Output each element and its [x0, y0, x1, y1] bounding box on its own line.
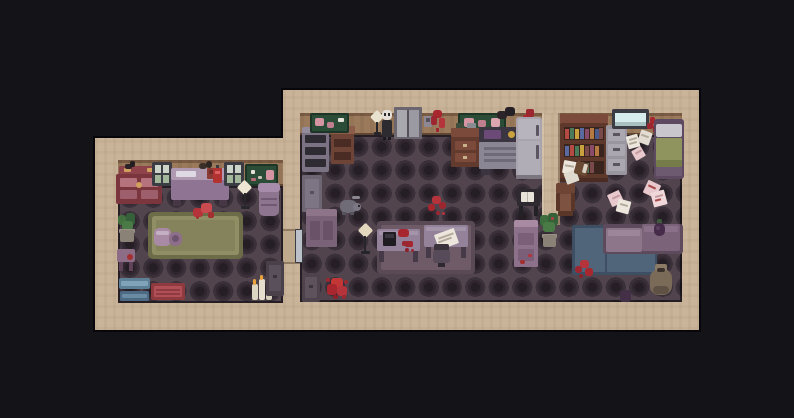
floor-blood-1-part: [436, 211, 440, 215]
red-doormat: [151, 283, 185, 300]
metal-shelf-part: [305, 135, 326, 143]
floor-blood-drips-part: [402, 241, 407, 246]
clay-pot-part: [653, 286, 669, 294]
game-scene: [0, 0, 794, 418]
file-cabinet: [606, 125, 627, 175]
elevator-door-part: [409, 110, 419, 137]
floor-blood-2-part: [344, 280, 348, 284]
paper-scrap-2: [639, 131, 651, 144]
mauve-dresser: [306, 209, 337, 247]
wall-sconce-lamp-part: [374, 132, 381, 135]
bookshelf-part: [590, 145, 594, 156]
floor-blood-1: [428, 196, 447, 218]
kitchen-stool-part: [119, 262, 123, 271]
wall-smudge-icon-part: [130, 161, 135, 167]
fridge-part: [536, 145, 539, 159]
wood-desk-part: [334, 139, 351, 147]
desk-papers-part: [461, 247, 466, 258]
bedroom-window-part: [615, 122, 646, 126]
elevator-door[interactable]: [394, 107, 422, 139]
office-chair-part: [433, 250, 450, 263]
rat-part: [350, 212, 354, 215]
furniture-layer: [0, 0, 794, 418]
masked-figure-part: [388, 113, 390, 116]
shrine-cabinet-part: [136, 182, 142, 188]
dark-bottle-part: [620, 290, 631, 302]
shrine-cabinet-part: [120, 190, 137, 199]
gray-cabinet: [302, 175, 322, 212]
fridge: [516, 117, 542, 179]
office-floor-lamp-part: [364, 236, 366, 251]
mauve-cabinet-bloodied: [514, 220, 538, 267]
divider-plant-part: [543, 235, 556, 247]
chalkboard-1-part: [338, 118, 344, 122]
wooden-sideboard-part: [463, 156, 467, 159]
wooden-sideboard-part: [451, 128, 480, 137]
blue-shelf-part: [121, 281, 148, 286]
blue-shelf: [119, 278, 150, 301]
kitchen-window-1-part: [163, 175, 169, 183]
bookshelf-part: [565, 129, 569, 139]
eggplant-on-couch: [651, 219, 667, 237]
kitchen-window-2-part: [235, 165, 241, 173]
brown-armchair-part: [571, 193, 575, 211]
fridge-part: [516, 175, 542, 179]
chalkboard-1-part: [315, 118, 324, 126]
table-pots-part: [156, 231, 169, 235]
mauve-cabinet-bloodied-part: [518, 233, 534, 245]
floor-blood-drips-part: [405, 248, 409, 252]
kitchen-plant-part: [120, 230, 134, 242]
eggplant-on-couch-part: [654, 223, 665, 236]
kitchen-window-2-part: [227, 165, 233, 173]
blue-shelf-part: [122, 294, 147, 298]
floor-blood-2-part: [327, 284, 337, 295]
floor-blood-1-part: [442, 212, 445, 215]
wall-switch-part: [426, 118, 430, 122]
meat-chunks-part: [208, 212, 214, 218]
mauve-cabinet-bloodied-part: [528, 254, 532, 257]
kitchen-floor-lamp-part: [244, 193, 246, 205]
wall-blood-smear-1-part: [436, 128, 439, 132]
shrine-cabinet-part: [120, 178, 137, 187]
bookshelf-part: [590, 162, 594, 173]
meat-chunks-part: [196, 216, 199, 219]
kitchen-pinboard-part: [266, 170, 274, 180]
meat-chunks: [192, 203, 215, 219]
bookshelf-part: [590, 128, 594, 139]
brown-armchair-part: [556, 193, 560, 211]
paper-scrap-9-part: [616, 199, 632, 215]
wall-blood-smear-1-part: [439, 118, 445, 128]
bed-part: [656, 160, 682, 167]
corner-locker-mid: [302, 273, 320, 302]
couch-part: [608, 230, 640, 236]
black-desk-with-book-part: [527, 192, 528, 202]
floor-blood-1-part: [439, 202, 446, 209]
door-panel[interactable]: [295, 229, 303, 263]
kitchen-pinboard-part: [258, 176, 262, 179]
kitchen-floor-lamp: [236, 181, 254, 209]
desk-typewriter-part: [385, 234, 394, 238]
red-doormat-part: [156, 293, 180, 295]
office-floor-lamp: [357, 225, 374, 257]
fire-extinguisher: [213, 165, 222, 184]
file-cabinet-part: [613, 133, 620, 136]
masked-figure-part: [383, 137, 386, 140]
kitchen-plant: [116, 213, 138, 244]
bed-part: [656, 167, 682, 176]
door-panel-part: [296, 230, 302, 262]
brown-armchair: [556, 183, 575, 217]
masked-figure-part: [382, 120, 392, 137]
wall-cobweb-icon-2-part: [505, 107, 515, 116]
bookshelf-part: [585, 146, 589, 156]
bookshelf-part: [595, 146, 599, 156]
file-cabinet-part: [613, 163, 620, 166]
trash-bin-part: [258, 183, 280, 192]
bookshelf-part: [599, 128, 603, 139]
candles-part: [252, 284, 258, 300]
floor-blood-1-part: [428, 204, 435, 211]
rug-blood-part: [579, 274, 583, 278]
dark-bottle: [620, 290, 631, 302]
trash-bin: [258, 183, 280, 216]
trash-bin-part: [261, 198, 277, 200]
bookshelf-part: [570, 145, 574, 156]
red-doormat-part: [156, 289, 180, 291]
divider-plant-part: [543, 222, 555, 232]
desk-typewriter-part: [379, 251, 384, 262]
table-pots-part: [172, 235, 179, 242]
masked-figure: [381, 110, 393, 140]
metal-shelf-part: [305, 147, 326, 155]
kitchen-window-2-part: [227, 175, 233, 183]
corner-locker-left: [266, 261, 284, 296]
eggplant-on-couch-part: [656, 226, 660, 230]
mauve-cabinet-bloodied-part: [520, 260, 525, 264]
paper-scrap-3: [633, 148, 644, 159]
fire-extinguisher-part: [215, 171, 220, 174]
paper-scrap-3-part: [631, 146, 646, 161]
bookshelf-part: [580, 128, 584, 139]
paper-scrap-9: [617, 200, 630, 213]
bedroom-window: [612, 109, 649, 129]
paper-scrap-7: [652, 191, 666, 206]
kitchen-floor-lamp-part: [241, 206, 250, 209]
shrine-cabinet-part: [141, 190, 158, 199]
floor-blood-2-part: [326, 278, 330, 282]
file-cabinet-part: [613, 148, 620, 151]
rat-part: [342, 212, 346, 215]
rug-blood-part: [585, 268, 593, 276]
wall-blood-smear-1-part: [431, 116, 437, 125]
kitchen-window-1: [152, 162, 172, 186]
brown-armchair-part: [558, 211, 573, 216]
bookshelf-part: [585, 129, 589, 139]
office-chair: [431, 244, 452, 267]
bookshelf-part: [580, 145, 584, 156]
wall-cobweb-icon-part: [206, 161, 212, 168]
wooden-sideboard-part: [463, 144, 467, 147]
masked-figure-part: [388, 137, 391, 140]
clay-pot: [649, 262, 673, 295]
elevator-door-part: [407, 110, 409, 137]
wall-smudge-icon: [125, 161, 135, 171]
bed-part: [656, 124, 682, 137]
office-floor-lamp-part: [361, 251, 370, 254]
kitchen-window-1-part: [155, 165, 161, 173]
rug-blood: [575, 260, 596, 279]
bookshelf-part: [560, 114, 608, 123]
chalkboard-1-part: [327, 122, 334, 128]
floor-book: [575, 162, 588, 175]
bookshelf-part: [565, 146, 569, 156]
floor-blood-drips-part: [409, 243, 413, 247]
rug-blood-part: [575, 266, 582, 273]
office-chair-part: [438, 263, 445, 267]
candles-part: [260, 275, 263, 280]
trash-bin-part: [261, 204, 277, 206]
bookshelf-part: [575, 146, 579, 156]
table-pots: [153, 224, 183, 248]
black-desk-with-book-part: [519, 206, 523, 216]
wall-sconce-lamp-part: [376, 122, 378, 132]
corner-locker-left-part: [269, 265, 281, 291]
bookshelf-part: [570, 128, 574, 139]
metal-shelf-part: [305, 159, 326, 167]
rat: [338, 195, 362, 216]
floor-blood-drips: [402, 241, 415, 253]
chalkboard-1: [310, 113, 349, 133]
candles-part: [253, 279, 256, 285]
metal-shelf: [302, 127, 329, 172]
mauve-dresser-part: [310, 221, 320, 240]
kitchen-stool: [117, 249, 135, 271]
corner-locker-left-part: [273, 275, 277, 278]
fridge-part: [536, 125, 539, 136]
gray-cabinet-part: [310, 191, 314, 194]
masked-figure-part: [384, 113, 386, 116]
elevator-door-part: [397, 110, 407, 137]
paper-scrap-2-part: [637, 129, 653, 145]
wall-blood-smear-1: [431, 110, 445, 132]
rat-part: [358, 205, 360, 207]
kitchen-counter-part: [176, 171, 196, 177]
wooden-sideboard: [451, 123, 480, 171]
red-doormat-part: [154, 286, 182, 297]
clay-pot-part: [657, 268, 665, 272]
rat-part: [352, 196, 360, 199]
floor-blood-drips-part: [411, 249, 414, 252]
floor-blood-2: [325, 276, 350, 301]
kitchen-window-1-part: [155, 175, 161, 183]
floor-blood-2-part: [333, 295, 338, 299]
floor-blood-2-part: [342, 295, 346, 299]
bed: [654, 119, 684, 179]
wall-cobweb-icon: [199, 161, 212, 171]
bookshelf-part: [575, 129, 579, 139]
wall-cobweb-icon-2: [497, 107, 515, 121]
couch: [603, 221, 683, 256]
kitchen-stool-part: [129, 262, 133, 271]
desk-typewriter-part: [398, 229, 409, 237]
metal-console-part: [484, 130, 501, 139]
divider-plant: [537, 213, 561, 249]
kitchen-window-1-part: [163, 165, 169, 173]
mauve-dresser-part: [323, 221, 333, 240]
kitchen-pinboard-part: [251, 170, 255, 174]
metal-console-part: [508, 131, 515, 138]
wood-desk-part: [334, 152, 351, 160]
candles-part: [259, 279, 265, 300]
kitchen-stool-part: [127, 254, 133, 260]
corner-locker-mid-part: [309, 285, 313, 288]
divider-plant-part: [551, 217, 554, 220]
